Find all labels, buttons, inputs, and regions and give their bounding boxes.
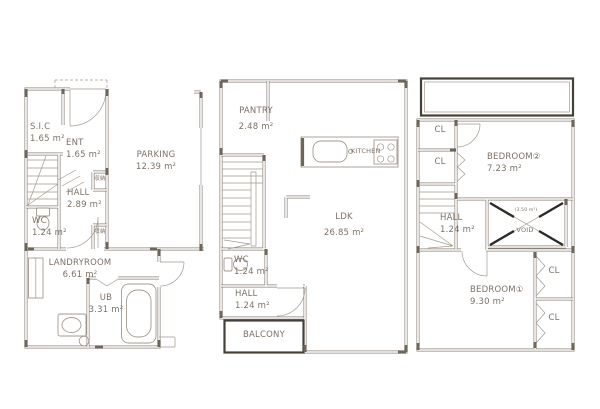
floorplan-page: S.I.C 1.65 m² ENT 1.65 m² PARKING 12.39 … bbox=[0, 0, 600, 409]
room-name: WC bbox=[32, 216, 67, 228]
room-name: PANTRY bbox=[239, 104, 274, 120]
floor1-entrance-door-arc bbox=[70, 90, 106, 126]
room-area: 7.23 m² bbox=[487, 164, 541, 176]
room-area: 1.24 m² bbox=[440, 225, 475, 237]
room-label-hall1: HALL 2.89 m² bbox=[67, 188, 102, 211]
room-name: LANDRYROOM bbox=[49, 258, 112, 270]
floor3-cl3-bifold-door bbox=[536, 256, 545, 296]
floor3-cl1-door-arc bbox=[457, 124, 480, 147]
room-area: 12.39 m² bbox=[136, 162, 176, 174]
room-name: CL bbox=[548, 266, 559, 278]
floor3-bedroom1-door-arc bbox=[462, 251, 487, 276]
room-label-ldk: LDK 26.85 m² bbox=[324, 210, 364, 241]
room-name: PARKING bbox=[136, 150, 176, 162]
room-area: 1.24 m² bbox=[235, 301, 270, 313]
room-area: 2.48 m² bbox=[239, 120, 274, 136]
room-name: WC bbox=[234, 255, 269, 267]
room-name: CL bbox=[434, 125, 445, 137]
floor1-stairs bbox=[27, 156, 58, 205]
room-name: 収納 bbox=[94, 229, 105, 236]
floor3-cl4-bifold-door bbox=[536, 303, 545, 343]
floor1-back-door-arc bbox=[160, 262, 184, 286]
void-area-note: (3.50 m²) bbox=[515, 208, 538, 214]
room-name: VOID bbox=[516, 226, 533, 234]
floor1-cabinet-icon bbox=[29, 258, 44, 298]
room-name: HALL bbox=[235, 289, 270, 301]
kitchen-sink bbox=[313, 141, 347, 162]
floor1-exterior-step bbox=[159, 337, 175, 347]
stove-burner bbox=[377, 156, 383, 162]
floor2-hall-door-arc bbox=[277, 288, 305, 316]
room-name: HALL bbox=[440, 213, 475, 225]
room-area: (3.50 m²) bbox=[515, 208, 538, 214]
washbasin-bowl bbox=[62, 318, 81, 333]
toilet-tank bbox=[37, 208, 50, 216]
room-label-void: VOID bbox=[516, 226, 533, 234]
floor2-stairs bbox=[222, 162, 263, 249]
room-name: HALL bbox=[67, 188, 102, 200]
floor2-kitchen-island-icon bbox=[301, 137, 398, 167]
room-name: BALCONY bbox=[243, 330, 285, 342]
room-label-cl-b: CL bbox=[434, 157, 445, 169]
room-name: BEDROOM① bbox=[470, 285, 524, 297]
room-area: 1.24 m² bbox=[32, 228, 67, 240]
kitchen-counter bbox=[301, 137, 398, 167]
room-label-balcony: BALCONY bbox=[243, 330, 285, 342]
floor1-washbasin-icon bbox=[58, 314, 89, 346]
stove-burner bbox=[388, 144, 394, 150]
room-area: 2.89 m² bbox=[67, 200, 102, 212]
room-label-hall2: HALL 1.24 m² bbox=[235, 289, 270, 312]
room-label-ent: ENT 1.65 m² bbox=[66, 138, 101, 161]
floor1-entrance-canopy bbox=[55, 80, 107, 88]
room-label-pantry: PANTRY 2.48 m² bbox=[239, 104, 274, 135]
room-name: LDK bbox=[324, 210, 364, 226]
room-label-cl-c: CL bbox=[548, 266, 559, 278]
room-label-kitchen: KITCHEN bbox=[351, 147, 381, 155]
room-area: 9.30 m² bbox=[470, 297, 524, 309]
room-label-cl-a: CL bbox=[434, 125, 445, 137]
room-label-wc1: WC 1.24 m² bbox=[32, 216, 67, 239]
room-name: 収納 bbox=[94, 176, 105, 183]
stove-burner bbox=[388, 156, 394, 162]
room-area: 6.61 m² bbox=[49, 270, 112, 282]
floor1-bathtub-icon bbox=[122, 284, 157, 343]
room-name: UB bbox=[89, 293, 124, 305]
room-name: CL bbox=[434, 157, 445, 169]
room-name: S.I.C bbox=[30, 122, 65, 134]
room-label-sic: S.I.C 1.65 m² bbox=[30, 122, 65, 145]
room-area: 1.65 m² bbox=[30, 134, 65, 146]
room-label-ub: UB 3.31 m² bbox=[89, 293, 124, 316]
room-name: CL bbox=[548, 313, 559, 325]
room-label-storage-upper: 収納 bbox=[94, 176, 105, 183]
room-area: 1.24 m² bbox=[234, 267, 269, 279]
room-label-parking: PARKING 12.39 m² bbox=[136, 150, 176, 173]
room-label-bedroom1: BEDROOM① 9.30 m² bbox=[470, 285, 524, 308]
toilet-tank bbox=[224, 258, 232, 271]
room-label-storage-lower: 収納 bbox=[94, 229, 105, 236]
room-name: BEDROOM② bbox=[487, 152, 541, 164]
floor3-roof-balcony-outline bbox=[421, 79, 573, 116]
room-label-hall3: HALL 1.24 m² bbox=[440, 213, 475, 236]
room-label-landryroom: LANDRYROOM 6.61 m² bbox=[49, 258, 112, 281]
room-area: 3.31 m² bbox=[89, 305, 124, 317]
room-label-bedroom2: BEDROOM② 7.23 m² bbox=[487, 152, 541, 175]
floor3-cl2-bifold-door bbox=[458, 153, 466, 181]
room-label-wc2: WC 1.24 m² bbox=[234, 255, 269, 278]
bathtub-inner bbox=[127, 290, 152, 337]
room-area: 26.85 m² bbox=[324, 226, 364, 242]
room-name: KITCHEN bbox=[351, 147, 381, 155]
room-name: ENT bbox=[66, 138, 101, 150]
room-area: 1.65 m² bbox=[66, 150, 101, 162]
room-label-cl-d: CL bbox=[548, 313, 559, 325]
